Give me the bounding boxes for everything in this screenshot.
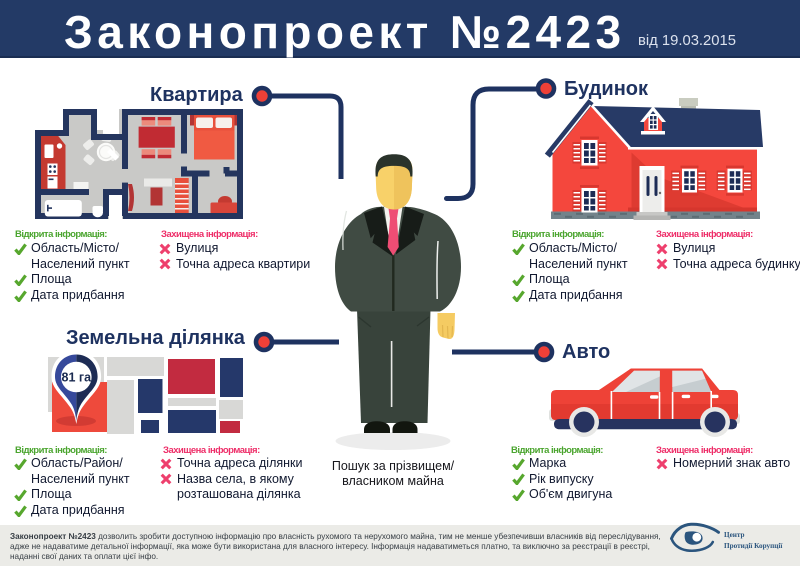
svg-text:81 га: 81 га <box>62 371 93 385</box>
